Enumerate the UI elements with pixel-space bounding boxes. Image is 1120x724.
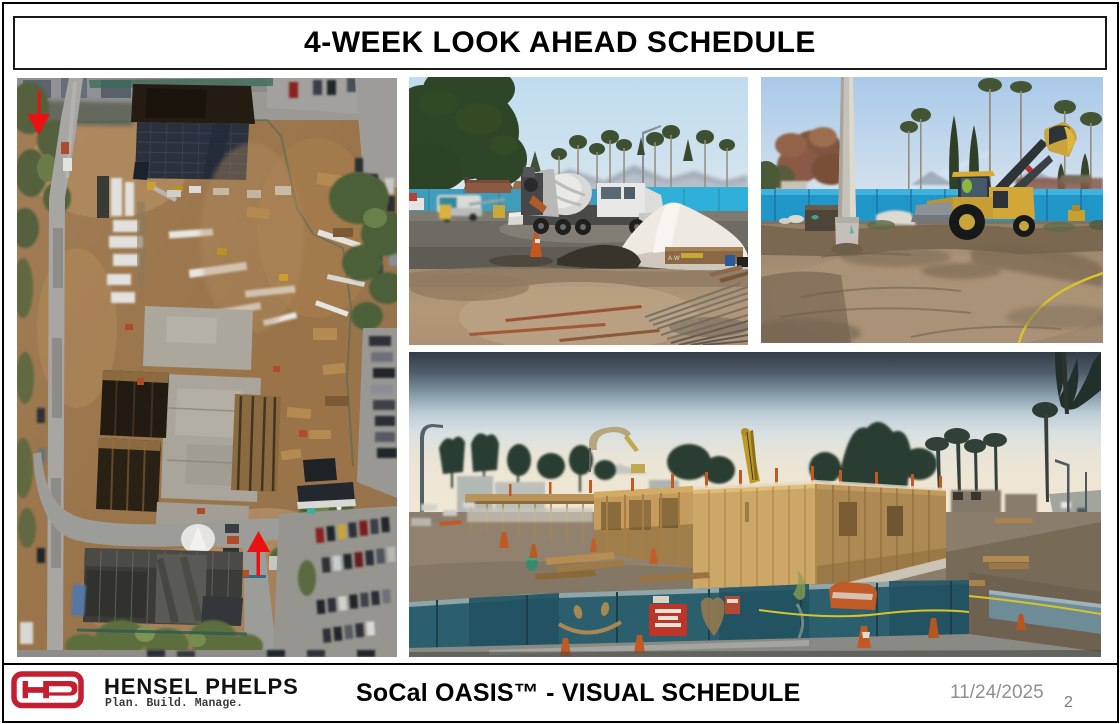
svg-text:A·W: A·W xyxy=(668,256,680,262)
